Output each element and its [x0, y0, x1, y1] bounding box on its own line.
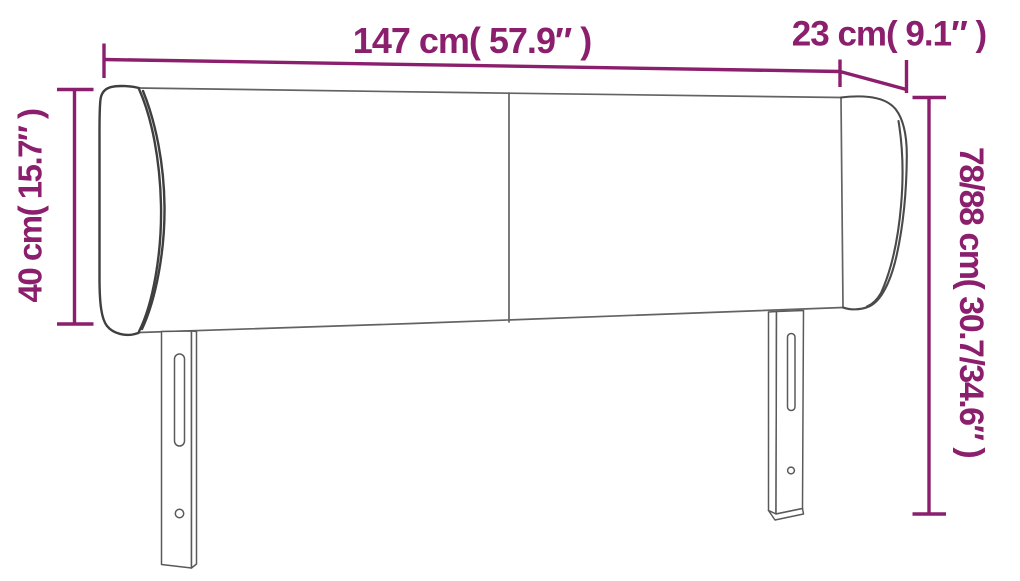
left-leg-side	[192, 331, 197, 568]
depth-dimension-label: 23 cm( 9.1″ )	[792, 17, 986, 52]
headboard-right-wing-roll-line	[867, 121, 902, 307]
headboard-left-wing-roll-line-1	[139, 89, 161, 332]
headboard-legs	[162, 311, 804, 569]
right-leg-side	[769, 312, 777, 515]
wing-height-dimension-label: 40 cm( 15.7″ )	[14, 110, 47, 303]
headboard-left-wing-outline	[100, 86, 140, 335]
depth-dimension-line	[840, 72, 907, 90]
headboard-top-edge	[138, 88, 841, 98]
width-dimension-label: 147 cm( 57.9″ )	[353, 23, 591, 59]
right-leg-front	[776, 311, 804, 515]
product-dimension-diagram: 147 cm( 57.9″ ) 23 cm( 9.1″ ) 40 cm( 15.…	[0, 0, 1020, 581]
headboard-line-art	[0, 0, 1020, 581]
headboard-right-wing-outline	[841, 96, 907, 309]
headboard-right-wing-seam	[841, 98, 843, 308]
total-height-dimension-label: 78/88 cm( 30.7/34.6″ )	[954, 147, 988, 457]
left-leg-front	[162, 331, 192, 568]
width-dimension-line	[104, 60, 840, 72]
headboard-bottom-edge	[139, 308, 843, 333]
headboard-shape	[100, 86, 907, 335]
